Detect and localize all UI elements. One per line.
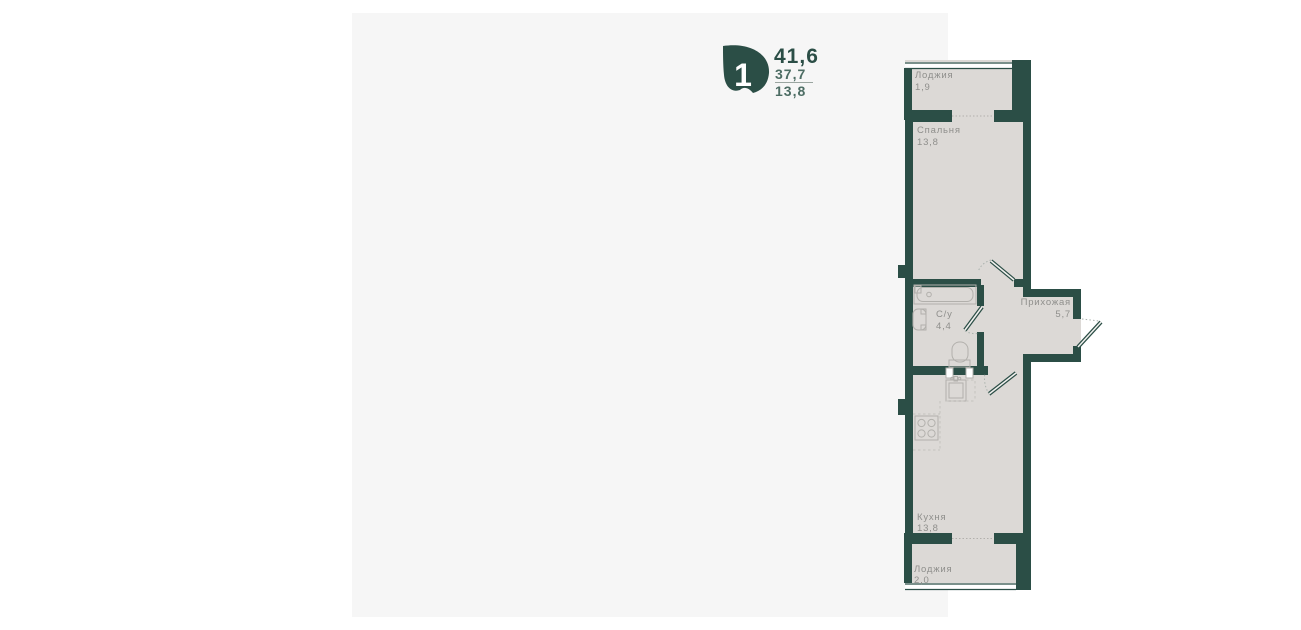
- room-name-kitchen: Кухня: [917, 512, 946, 523]
- page: 1 41,6 37,7 13,8: [0, 0, 1301, 630]
- window-top: [905, 62, 1012, 69]
- duct-slot: [966, 368, 973, 378]
- left-pilaster-upper: [898, 265, 905, 278]
- duct-slot: [946, 368, 953, 378]
- room-name-hallway: Прихожая: [1021, 297, 1071, 308]
- leaf-logo: 1: [718, 44, 772, 96]
- floor-plan: Лоджия 1,9 Спальня 13,8 С/у 4,4 Прихожая…: [892, 53, 1112, 598]
- room-area-loggia-top: 1,9: [915, 82, 931, 93]
- room-area-bedroom: 13,8: [917, 137, 939, 148]
- kitchen-area: 13,8: [775, 84, 806, 98]
- door-entrance: [1078, 319, 1101, 347]
- plan-panel: 1 41,6 37,7 13,8: [352, 13, 948, 617]
- rooms-badge: 1: [734, 57, 752, 93]
- room-name-loggia-bottom: Лоджия: [914, 564, 952, 575]
- room-area-loggia-bottom: 2,0: [914, 575, 930, 586]
- total-area: 41,6: [774, 46, 819, 67]
- room-name-loggia-top: Лоджия: [915, 70, 953, 81]
- room-area-hallway: 5,7: [1055, 309, 1071, 320]
- room-area-bathroom: 4,4: [936, 321, 952, 332]
- living-area: 37,7: [775, 68, 813, 83]
- room-name-bedroom: Спальня: [917, 125, 961, 136]
- room-area-kitchen: 13,8: [917, 523, 939, 534]
- left-pilaster-lower: [898, 399, 905, 415]
- room-name-bathroom: С/у: [936, 309, 953, 320]
